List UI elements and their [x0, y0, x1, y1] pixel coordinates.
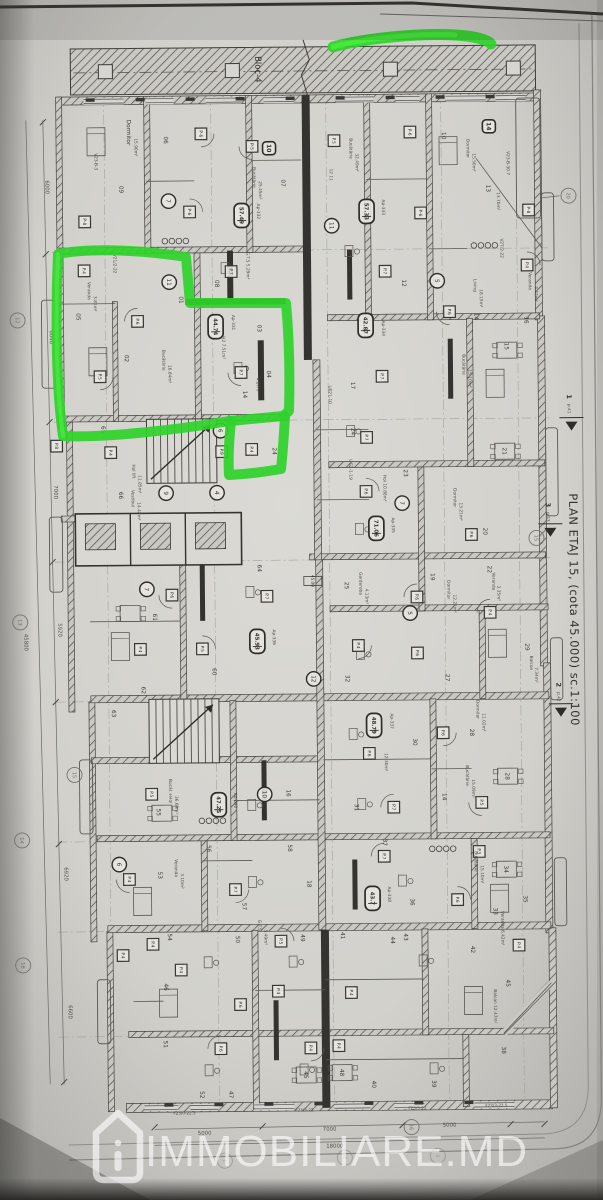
grid-bubble: 14 [18, 837, 24, 843]
grid-bubble: 16 [19, 962, 25, 968]
radiator [314, 1102, 323, 1106]
wall [201, 841, 208, 931]
wall [463, 1035, 470, 1107]
plan-title: PLAN ETAJ 15, (cota 45.000) sc.1:100 [566, 493, 582, 726]
door-tag: P.7 [263, 593, 269, 599]
ref-circle: 10 [261, 791, 267, 799]
room-label: 57 [241, 903, 247, 911]
apartment-badge: 42.87 [362, 317, 368, 334]
window [254, 1103, 294, 1110]
door-tag: P.4 [137, 646, 143, 652]
elevator-cab [85, 524, 115, 550]
room-label: G.T.S [256, 920, 262, 931]
dimension-label: 6600 [67, 1005, 73, 1019]
room-label: 23 [402, 469, 408, 477]
wall-solid [448, 339, 454, 399]
room-label: 18.15m² [478, 289, 484, 308]
door-tag: P.4 [126, 876, 132, 882]
room-label: 27 [444, 674, 450, 682]
door-tag: P.4 [523, 262, 529, 268]
ref-circle: 7 [398, 501, 404, 505]
room-label: 4.13m² [363, 589, 369, 605]
door-tag: P.7 [390, 804, 396, 810]
room-label: 28 [503, 772, 509, 780]
room-label: 24 [271, 448, 277, 456]
door-tag: P.7 [382, 268, 388, 274]
door-tag: P.6 [440, 730, 446, 736]
door-tag: P.6 [217, 1046, 223, 1052]
room-label: V21/2-22 [111, 254, 117, 274]
door-tag: P.9 [218, 449, 224, 455]
apartment-badge: 48.79 [370, 717, 376, 734]
room-label: 34 [502, 865, 508, 873]
door-tag: P.7 [228, 268, 234, 274]
room-label: 32.49m² [354, 153, 360, 172]
door-tag: P.6 [454, 897, 460, 903]
room-label: 66 [117, 492, 123, 500]
radiator [436, 95, 445, 99]
dimension-label: 6000 [43, 180, 49, 194]
floor-plan-svg: Bloc-4 Dormitor15.90m²06P-610P-5Bucătări… [0, 0, 603, 1200]
grid-bubble: 15 [71, 772, 77, 778]
section-marker: 1 [565, 394, 573, 399]
room-label: Bucătărie [473, 851, 479, 872]
dimension-label: 5920 [56, 623, 62, 637]
room-label: 14 [472, 313, 478, 321]
door-tag: P.5 [330, 138, 336, 144]
room-label: Hol 10.88m² [381, 475, 387, 502]
door-tag: P.4 [335, 1043, 341, 1049]
room-label: 19 [429, 573, 435, 581]
dimension-label: 6920 [62, 867, 68, 881]
stair-step [191, 699, 192, 763]
grid-bubble: 12 [14, 317, 20, 323]
door-tag: P.6 [237, 1001, 243, 1007]
wall [549, 928, 558, 1108]
radiator [186, 97, 195, 101]
door-tag: P-8 [525, 207, 531, 214]
ref-circle: 5 [433, 279, 439, 283]
door-tag: P.4 [119, 952, 125, 958]
room-label: 09 [117, 186, 123, 194]
room-label: 16 [522, 316, 528, 324]
ref-circle: 6 [115, 863, 121, 867]
door-tag: P.4 [81, 268, 87, 274]
ref-rounded: 10 [265, 144, 272, 152]
room-label: 31 [353, 804, 359, 812]
door-tag: P.5 [277, 938, 283, 944]
radiator [236, 97, 245, 101]
door-tag: P.4 [275, 988, 281, 994]
room-label: 03 [256, 325, 262, 333]
room-label: 60 [211, 668, 217, 676]
stair-step [156, 699, 157, 763]
room-label: 52 [198, 1091, 204, 1099]
room-label: 13.21m² [458, 502, 464, 521]
room-label: 55 [155, 809, 161, 817]
door-tag: P.6 [413, 594, 419, 600]
room-label: 48 [338, 1069, 344, 1077]
room-label: 32 [344, 675, 350, 683]
room-label: 20 [481, 528, 487, 536]
room-label: 15.10m² [466, 369, 472, 388]
apartment-badge: 57.49 [238, 207, 244, 224]
door-tag: P.6 [362, 488, 368, 494]
room-label: 62 [140, 687, 146, 695]
room-label: 15 [503, 342, 509, 350]
room-label: Living [472, 279, 478, 292]
window [446, 94, 486, 101]
room-label: 61 [151, 614, 157, 622]
room-label: 53 [156, 872, 162, 880]
door-tag: P.5 [199, 646, 205, 652]
room-label: Hol lift [130, 464, 136, 478]
door-tag: P.4 [487, 609, 493, 615]
door-tag: P.8 [53, 443, 59, 449]
room-label: Veranda [86, 282, 92, 300]
room-label: 13 [484, 185, 490, 193]
apartment-badge: 47.25 [215, 796, 221, 813]
room-label: 15.09m² [470, 779, 476, 798]
room-label: Ap-331 [230, 315, 236, 331]
room-label: 16 [285, 789, 291, 797]
radiator [214, 1103, 223, 1107]
room-label: 30 [411, 738, 417, 746]
room-label: 33 [492, 908, 498, 916]
room-label: 5.49m² [262, 930, 268, 946]
room-label: Bucăt.+Hol [167, 779, 173, 803]
room-label: 14.48m² [136, 502, 142, 521]
wall [252, 930, 260, 1108]
room-label: 15.10m² [479, 865, 485, 884]
room-label: 08 [213, 280, 219, 288]
room-label: Veranda [527, 272, 533, 290]
apartment-badge: 57.33 [363, 203, 369, 220]
grid-bubble: 13 [16, 619, 22, 625]
door-tag: P.4 [348, 989, 354, 995]
door-tag: P.7 [381, 853, 387, 859]
room-label: 3.81m² [92, 296, 98, 312]
room-label: 07 [279, 179, 285, 187]
wall-solid [273, 1000, 279, 1060]
photo-of-floor-plan: Bloc-4 Dormitor15.90m²06P-610P-5Bucătări… [0, 0, 603, 1200]
room-label: 14 [241, 391, 247, 399]
room-label: U021-10 [327, 386, 333, 405]
door-tag: P.6 [168, 592, 174, 598]
wall [479, 610, 486, 698]
door-tag: P.6 [468, 531, 474, 537]
window-tag: F23/3-22 [295, 1107, 314, 1112]
grid-bubble: 15 [533, 535, 539, 541]
room-label: Ap-340 [232, 793, 238, 809]
room-label: 05 [74, 313, 80, 321]
grid-bubble: 20 [565, 192, 571, 198]
room-label: 12.21m² [451, 595, 457, 614]
room-label: 3.10m² [179, 873, 185, 889]
door-tag: P.5 [148, 791, 154, 797]
room-label: Bucătărie [347, 138, 353, 159]
room-label: Veranda [173, 859, 179, 877]
room-label: 17 [349, 382, 355, 390]
room-label: Dormitor [464, 139, 470, 158]
room-label: UG2-1-19 [347, 459, 353, 480]
room-label: Bucătărie [251, 167, 257, 188]
door-tag: P.5 [478, 799, 484, 805]
door-tag: P.6 [134, 318, 140, 324]
room-label: Ap-332 [255, 204, 261, 220]
door-tag: P.7 [378, 373, 384, 379]
window-tag: F23/3-22.5 [485, 1103, 508, 1108]
watermark-text: IMMOBILIARE.MD [145, 1127, 528, 1176]
room-label: 10 [440, 132, 446, 140]
room-label: 4.42m² [533, 286, 539, 302]
wall [418, 467, 425, 611]
apartment-badge: 71.06 [372, 520, 378, 537]
elevator-cab [140, 523, 170, 549]
door-tag: P.4 [515, 942, 521, 948]
radiator [464, 1101, 473, 1105]
room-label: G.T.S 5.29m² [244, 252, 250, 280]
room-label: 18 [305, 880, 311, 888]
column-symbol [98, 65, 112, 79]
room-label: 13.70m² [495, 192, 501, 211]
room-label: 40 [370, 1081, 376, 1089]
room-label: 35 [521, 895, 527, 903]
room-label: 36 [409, 898, 415, 906]
window-tag: F23/0-22.5 [173, 1110, 196, 1115]
stair-step [170, 699, 171, 763]
door-tag: P-6 [417, 209, 423, 216]
room-label: Dormitor [125, 120, 131, 146]
partition-line [366, 179, 426, 180]
window [396, 95, 420, 102]
apartment-badge: 43.7 [369, 892, 375, 906]
room-label: 16.84m² [166, 365, 172, 384]
room-label: Dormitor [474, 700, 480, 719]
room-label: 42 [469, 946, 475, 954]
room-label: 64 [256, 565, 262, 573]
door-tag: P.7 [232, 886, 238, 892]
room-label: Balcon 12.47m² [492, 989, 498, 1023]
room-label: 45 [302, 1071, 308, 1079]
door-tag: P-6 [186, 208, 192, 215]
room-label: 54 [166, 933, 172, 941]
radiator [164, 1103, 173, 1107]
room-label: Garderoba [357, 572, 363, 595]
apartment-badge: 44.74 [212, 318, 218, 335]
window-tag: F23/3-22 [408, 1105, 427, 1110]
room-label: 21 [501, 447, 507, 455]
room-label: 58 [286, 844, 292, 852]
door-tag: P.6 [414, 650, 420, 656]
room-label: 49 [299, 934, 305, 942]
radiator [486, 95, 495, 99]
section-marker: 2 [554, 682, 562, 687]
room-label: Veranda 6.42m² [499, 911, 505, 946]
wall-solid [321, 930, 331, 1108]
room-label: Ap-334 [380, 321, 386, 337]
elevator-cab [195, 523, 225, 549]
room-label: V23-B-3 [93, 153, 99, 170]
room-label: Vestibul [129, 490, 135, 507]
room-label: 44 [389, 936, 395, 944]
stair-step [163, 699, 164, 763]
room-label: 38 [500, 1047, 506, 1055]
wall [230, 701, 237, 841]
radiator [286, 97, 295, 101]
dimension-label: 45800 [22, 634, 28, 652]
stair-step [205, 699, 206, 763]
room-label: p.41 [566, 404, 572, 414]
wall [194, 253, 201, 421]
ref-circle: 9 [162, 491, 168, 495]
room-label: 45 [504, 979, 510, 987]
door-tag: P.4 [355, 642, 361, 648]
room-label: H2 7.51m² [220, 336, 226, 359]
door-tag: P-6 [406, 129, 412, 136]
door-tag: P.7 [363, 434, 369, 440]
room-label: 28 [468, 729, 474, 737]
door-tag: P.4 [149, 941, 155, 947]
room-label: p.43 [545, 512, 551, 522]
ref-circle: 7 [143, 587, 149, 591]
room-label: 25.45m² [257, 181, 263, 200]
radiator [414, 1101, 423, 1105]
room-label: Bucătărie [460, 354, 466, 375]
radiator [336, 96, 345, 100]
room-label: 12 [400, 279, 406, 287]
radiator [364, 1101, 373, 1105]
room-label: 43 [402, 933, 408, 941]
door-tag: P.7 [237, 369, 243, 375]
wall [112, 302, 118, 422]
door-tag: P.6 [446, 309, 452, 315]
room-label: 41 [339, 932, 345, 940]
door-tag: P-6 [197, 130, 203, 137]
room-label: 37 [381, 839, 387, 847]
elevation-mark: 45.00 [310, 575, 315, 587]
room-label: Dormitor [445, 580, 451, 599]
wall [422, 929, 429, 1035]
room-label: 50 [234, 936, 240, 944]
dimension-label: 7000 [52, 485, 58, 499]
room-label: Ap-336 [271, 629, 277, 645]
column-symbol [383, 62, 397, 76]
room-label: Bucătărie [160, 350, 166, 371]
radiator [136, 98, 145, 102]
door-tag: P-5 [248, 143, 254, 150]
wall [467, 318, 474, 466]
room-label: 56 [205, 845, 211, 853]
room-label: 12 11 [328, 169, 334, 182]
room-label: Ap-337 [388, 713, 394, 729]
room-label: Ap-333 [380, 200, 386, 216]
room-label: 04 [265, 371, 271, 379]
bloc-label: Bloc-4 [252, 56, 262, 83]
ref-circle: 11 [165, 278, 171, 286]
stair-step [198, 699, 199, 763]
room-label: 46 [162, 983, 168, 991]
section-marker: 3 [544, 503, 552, 508]
column-symbol [506, 61, 520, 75]
ref-circle: 11 [328, 222, 334, 230]
wall-solid [200, 561, 206, 621]
room-label: 15.90m² [132, 138, 138, 157]
room-label: V2T/2-22 [498, 238, 504, 258]
room-label: 3.35m² [495, 586, 501, 602]
room-label: 47 [227, 1091, 233, 1099]
door-tag: P.4 [107, 450, 113, 456]
wall [144, 96, 151, 253]
room-label: 63 [110, 710, 116, 718]
room-label: 24 [349, 428, 355, 436]
radiator [386, 96, 395, 100]
room-label: 4.87m² [255, 378, 261, 394]
ref-circle: 4 [213, 491, 219, 495]
radiator [264, 1102, 273, 1106]
apartment-badge: 45.93 [253, 633, 259, 650]
door-tag: P.5 [96, 374, 102, 380]
wall-solid [347, 250, 352, 300]
room-label: 11.85m² [136, 475, 142, 494]
room-label: 7.34m² [533, 667, 539, 683]
room-label: Ap-338 [386, 886, 392, 902]
column-symbol [225, 64, 239, 78]
room-label: 51 [162, 1040, 168, 1048]
door-tag: P.4 [248, 446, 254, 452]
room-label: p.42 [555, 692, 561, 702]
door-tag: P.4 [178, 967, 184, 973]
room-label: V23-B-30.7 [505, 151, 511, 175]
room-label: 11.02m² [480, 713, 486, 732]
ref-circle: 12 [310, 675, 316, 683]
ref-circle: 5 [406, 611, 412, 615]
room-label: 15.50m² [471, 153, 477, 172]
stair-step [177, 699, 178, 763]
room-label: 02 [123, 355, 129, 363]
room-label: 01 [177, 296, 183, 304]
room-label: 14 [441, 793, 447, 801]
room-label: 06 [162, 136, 168, 144]
wall [313, 360, 322, 560]
ref-rounded: 14 [485, 122, 492, 130]
door-tag: P-8 [81, 218, 87, 225]
room-label: 12.30m² [383, 753, 389, 772]
room-label: Ap-335 [390, 517, 396, 533]
room-label: 29 [523, 643, 529, 651]
radiator [86, 98, 95, 102]
room-label: Dormitor [451, 488, 457, 507]
ref-circle: 7 [164, 199, 170, 203]
window [146, 97, 174, 104]
ref-circle: 6 [216, 429, 222, 433]
door-tag: P.6 [366, 750, 372, 756]
room-label: 25 [343, 582, 349, 590]
room-label: 39 [430, 1080, 436, 1088]
door-tag: P.4 [307, 1045, 313, 1051]
room-label: 36.69m² [173, 796, 179, 815]
room-label: Bucătărie [464, 765, 470, 786]
wall-solid [352, 860, 357, 910]
